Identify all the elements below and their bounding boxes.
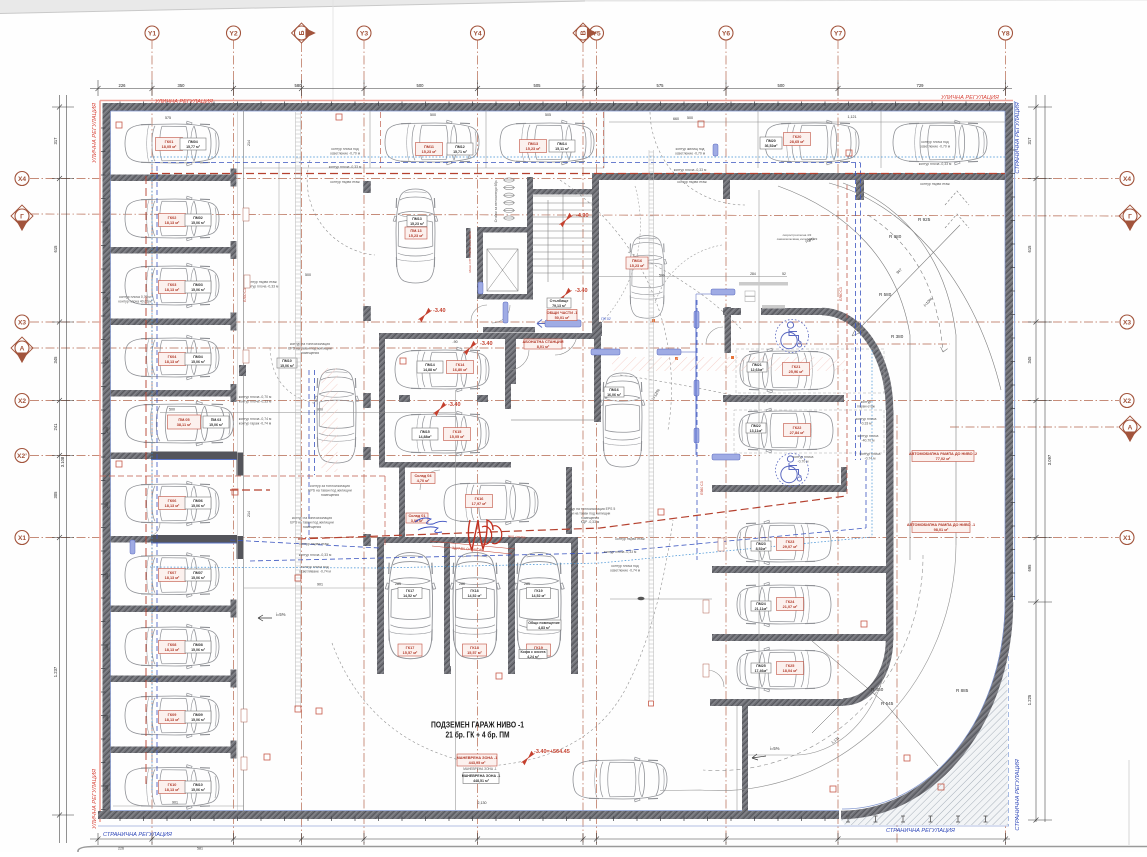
svg-text:контур първи етаж: контур първи етаж bbox=[615, 537, 645, 541]
svg-text:580: 580 bbox=[295, 83, 303, 88]
svg-text:Склад 01: Склад 01 bbox=[409, 514, 426, 518]
svg-text:615: 615 bbox=[1027, 245, 1032, 253]
svg-text:i=5%: i=5% bbox=[770, 746, 780, 751]
svg-text:15,06 м²: 15,06 м² bbox=[191, 288, 206, 292]
svg-text:МАНЕВРЕНА ЗОНА -1: МАНЕВРЕНА ЗОНА -1 bbox=[462, 774, 501, 778]
svg-text:СТРАНИЧНА РЕГУЛАЦИЯ: СТРАНИЧНА РЕГУЛАЦИЯ bbox=[886, 828, 955, 834]
svg-text:ПМ23: ПМ23 bbox=[756, 542, 766, 546]
svg-text:контур първи етаж: контур първи етаж bbox=[330, 180, 360, 184]
svg-text:-90: -90 bbox=[452, 340, 457, 344]
svg-text:18,04 м²: 18,04 м² bbox=[783, 669, 798, 673]
svg-text:345: 345 bbox=[1027, 356, 1032, 364]
svg-text:R 980: R 980 bbox=[889, 234, 902, 239]
svg-text:СТРАНИЧНА РЕГУЛАЦИЯ: СТРАНИЧНА РЕГУЛАЦИЯ bbox=[1015, 102, 1021, 173]
svg-text:15,05 м²: 15,05 м² bbox=[450, 435, 465, 439]
svg-text:3.097: 3.097 bbox=[1047, 454, 1052, 465]
svg-text:Y5: Y5 bbox=[592, 30, 601, 37]
svg-text:контур жилищ подосветление -0,: контур жилищ подосветление -0,70 м bbox=[675, 147, 706, 155]
svg-text:288: 288 bbox=[105, 502, 109, 508]
svg-text:контур първи етажконтур плоча: контур първи етажконтур плоча -0,33 м bbox=[246, 280, 279, 288]
svg-text:ГК17: ГК17 bbox=[406, 589, 414, 593]
svg-text:18,13 м²: 18,13 м² bbox=[165, 504, 180, 508]
svg-text:X1: X1 bbox=[18, 535, 26, 542]
svg-text:ГК16: ГК16 bbox=[475, 497, 484, 501]
svg-text:573: 573 bbox=[105, 357, 109, 363]
svg-text:ГК17: ГК17 bbox=[406, 646, 415, 650]
svg-text:ПМ22: ПМ22 bbox=[751, 424, 761, 428]
svg-text:ПМ03: ПМ03 bbox=[193, 283, 203, 287]
svg-text:ПМ16: ПМ16 bbox=[632, 259, 642, 263]
svg-text:18,05 м²: 18,05 м² bbox=[162, 145, 177, 149]
svg-text:X4: X4 bbox=[1123, 176, 1131, 183]
svg-text:8,52м²: 8,52м² bbox=[756, 547, 768, 551]
svg-text:ЕЛ60 С3: ЕЛ60 С3 bbox=[839, 287, 843, 301]
svg-text:500: 500 bbox=[778, 83, 786, 88]
svg-text:ПОДЗЕМЕН ГАРАЖ НИВО -1: ПОДЗЕМЕН ГАРАЖ НИВО -1 bbox=[431, 721, 524, 730]
svg-text:15,06 м²: 15,06 м² bbox=[280, 364, 295, 368]
svg-text:контур плоча -0,33 м: контур плоча -0,33 м bbox=[604, 550, 637, 554]
svg-text:ПМ10: ПМ10 bbox=[193, 783, 203, 787]
svg-text:ПМ06: ПМ06 bbox=[193, 499, 203, 503]
svg-text:ОБЩИ ЧАСТИ -1: ОБЩИ ЧАСТИ -1 bbox=[547, 311, 578, 315]
svg-text:ПМ04: ПМ04 bbox=[193, 355, 203, 359]
svg-text:285: 285 bbox=[395, 582, 401, 586]
svg-text:500: 500 bbox=[430, 113, 436, 117]
svg-text:4,70 м²: 4,70 м² bbox=[417, 479, 430, 483]
svg-text:ГК01: ГК01 bbox=[165, 140, 174, 144]
svg-text:Кофа с охсега: Кофа с охсега bbox=[520, 650, 546, 654]
svg-text:15,06 м²: 15,06 м² bbox=[191, 788, 206, 792]
svg-text:8,01 м²: 8,01 м² bbox=[537, 345, 550, 349]
svg-text:ПМ02: ПМ02 bbox=[193, 216, 203, 220]
svg-text:15,06 м²: 15,06 м² bbox=[191, 360, 206, 364]
svg-text:15,77 м²: 15,77 м² bbox=[186, 145, 201, 149]
svg-text:Y2: Y2 bbox=[229, 30, 238, 37]
svg-text:25,96 м²: 25,96 м² bbox=[789, 370, 804, 374]
svg-text:575: 575 bbox=[657, 83, 665, 88]
svg-text:15,23 м²: 15,23 м² bbox=[422, 150, 437, 154]
svg-text:УЛИЧНА РЕГУЛАЦИЯ: УЛИЧНА РЕГУЛАЦИЯ bbox=[940, 95, 999, 101]
svg-text:контур плоча подосветление -0,: контур плоча подосветление -0,70 м bbox=[920, 140, 951, 148]
svg-text:X3: X3 bbox=[18, 320, 26, 327]
svg-text:i=5%: i=5% bbox=[276, 612, 286, 617]
svg-text:-3.40: -3.40 bbox=[575, 288, 588, 294]
svg-text:R 885: R 885 bbox=[956, 688, 969, 693]
svg-text:X4: X4 bbox=[18, 176, 26, 183]
svg-text:1,121: 1,121 bbox=[848, 115, 857, 119]
svg-text:36,52м²: 36,52м² bbox=[765, 144, 779, 148]
svg-text:1.237: 1.237 bbox=[53, 666, 58, 677]
svg-text:УЛИЧНА РЕГУЛАЦИЯ: УЛИЧНА РЕГУЛАЦИЯ bbox=[92, 103, 98, 164]
svg-text:15,06 м²: 15,06 м² bbox=[191, 221, 206, 225]
svg-text:214: 214 bbox=[247, 140, 251, 146]
svg-text:ПМ04: ПМ04 bbox=[188, 140, 198, 144]
svg-text:ПМ25: ПМ25 bbox=[756, 664, 766, 668]
svg-text:15,57 м²: 15,57 м² bbox=[467, 651, 482, 655]
svg-text:350: 350 bbox=[178, 83, 186, 88]
svg-text:15,06 м²: 15,06 м² bbox=[191, 718, 206, 722]
svg-text:500: 500 bbox=[169, 408, 175, 412]
svg-text:15,23 м²: 15,23 м² bbox=[526, 147, 541, 151]
svg-text:Г: Г bbox=[1128, 214, 1132, 221]
svg-text:15,23 м²: 15,23 м² bbox=[410, 222, 425, 226]
svg-text:15,23 м²: 15,23 м² bbox=[630, 264, 645, 268]
svg-text:38,11 м²: 38,11 м² bbox=[177, 423, 192, 427]
svg-text:15,06 м²: 15,06 м² bbox=[191, 648, 206, 652]
svg-text:ПМ11: ПМ11 bbox=[424, 145, 434, 149]
svg-text:575: 575 bbox=[165, 116, 171, 120]
svg-text:28,65 м²: 28,65 м² bbox=[790, 140, 805, 144]
svg-text:12,63м²: 12,63м² bbox=[751, 368, 765, 372]
svg-text:288: 288 bbox=[105, 573, 109, 579]
svg-text:Е980 С3: Е980 С3 bbox=[700, 481, 704, 494]
svg-text:317: 317 bbox=[53, 137, 58, 145]
svg-text:X2’: X2’ bbox=[17, 453, 27, 460]
svg-text:Стълбище: Стълбище bbox=[550, 299, 569, 303]
svg-text:500: 500 bbox=[305, 273, 311, 277]
svg-text:R 925: R 925 bbox=[918, 217, 931, 222]
svg-text:13,11м²: 13,11м² bbox=[750, 429, 763, 433]
svg-text:288: 288 bbox=[105, 715, 109, 721]
svg-text:контур плоча 0,70 мконтур плоч: контур плоча 0,70 мконтур плоча 40,03 м bbox=[118, 295, 152, 303]
svg-text:X2: X2 bbox=[1123, 398, 1131, 405]
svg-text:15,23 м²: 15,23 м² bbox=[409, 234, 424, 238]
svg-text:Y8: Y8 bbox=[1001, 30, 1010, 37]
svg-text:443,95 м²: 443,95 м² bbox=[469, 761, 486, 765]
svg-text:ЕЛ30 С3: ЕЛ30 С3 bbox=[243, 288, 247, 302]
svg-text:УЛИЧНА РЕГУЛАЦИЯ: УЛИЧНА РЕГУЛАЦИЯ bbox=[154, 99, 213, 105]
svg-text:ГК14: ГК14 bbox=[456, 363, 466, 367]
svg-text:ГК04: ГК04 bbox=[168, 355, 178, 359]
svg-text:контур плоча подосветление -0,: контур плоча подосветление -0,74 м bbox=[610, 564, 641, 572]
svg-text:ГК15: ГК15 bbox=[453, 430, 462, 434]
svg-text:52: 52 bbox=[782, 272, 786, 276]
svg-text:50,01 м²: 50,01 м² bbox=[555, 316, 570, 320]
svg-text:79,13 м²: 79,13 м² bbox=[552, 304, 567, 308]
svg-text:14,52 м²: 14,52 м² bbox=[403, 594, 418, 598]
svg-text:контур първи етаж: контур първи етаж bbox=[299, 542, 329, 546]
svg-text:288: 288 bbox=[105, 297, 109, 303]
svg-text:ГК24: ГК24 bbox=[786, 600, 796, 604]
svg-text:286: 286 bbox=[459, 582, 465, 586]
svg-text:226: 226 bbox=[118, 847, 124, 851]
svg-text:17,97 м²: 17,97 м² bbox=[472, 502, 487, 506]
svg-text:615: 615 bbox=[53, 245, 58, 253]
svg-text:ПМ10: ПМ10 bbox=[282, 359, 292, 363]
svg-text:695: 695 bbox=[1027, 564, 1032, 572]
svg-text:21 бр. ГК + 4 бр. ПМ: 21 бр. ГК + 4 бр. ПМ bbox=[446, 731, 510, 740]
svg-text:77,02 м²: 77,02 м² bbox=[936, 457, 951, 461]
svg-text:14,88м²: 14,88м² bbox=[419, 435, 433, 439]
svg-text:241: 241 bbox=[53, 423, 58, 431]
svg-text:МАНЕВРЕНА ЗОНА -1: МАНЕВРЕНА ЗОНА -1 bbox=[457, 756, 498, 760]
svg-text:-4.90: -4.90 bbox=[576, 213, 589, 219]
svg-text:ПМ.05: ПМ.05 bbox=[178, 418, 189, 422]
svg-text:ПМ14: ПМ14 bbox=[557, 142, 567, 146]
svg-text:-3.40: -3.40 bbox=[448, 402, 461, 408]
svg-text:контур плоча -0,33 м: контур плоча -0,33 м bbox=[299, 553, 332, 557]
svg-text:581: 581 bbox=[197, 847, 203, 851]
svg-text:X2: X2 bbox=[18, 398, 26, 405]
svg-text:В: В bbox=[581, 30, 588, 35]
svg-text:14,52 м²: 14,52 м² bbox=[532, 594, 547, 598]
svg-text:345: 345 bbox=[53, 356, 58, 364]
svg-text:СТРАНИЧНА РЕГУЛАЦИЯ: СТРАНИЧНА РЕГУЛАЦИЯ bbox=[1015, 759, 1021, 830]
svg-text:ГК09: ГК09 bbox=[168, 713, 177, 717]
svg-text:286: 286 bbox=[105, 227, 109, 233]
svg-text:Y3: Y3 bbox=[360, 30, 369, 37]
svg-text:ПМ14: ПМ14 bbox=[425, 363, 435, 367]
svg-text:Стойки за велосипеди 6бр.: Стойки за велосипеди 6бр. bbox=[494, 180, 498, 223]
svg-text:ПМ15: ПМ15 bbox=[420, 430, 430, 434]
svg-text:18,13 м²: 18,13 м² bbox=[165, 360, 180, 364]
svg-text:ПМ.13: ПМ.13 bbox=[410, 229, 421, 233]
svg-text:18,13 м²: 18,13 м² bbox=[165, 576, 180, 580]
svg-text:286: 286 bbox=[105, 644, 109, 650]
svg-text:контур плоча -0,74 мконтур гар: контур плоча -0,74 мконтур гараж -0,74 м bbox=[239, 417, 272, 425]
svg-text:3.108: 3.108 bbox=[60, 456, 65, 467]
svg-text:А: А bbox=[1128, 425, 1133, 432]
svg-text:4,83 м²: 4,83 м² bbox=[538, 626, 551, 630]
svg-text:Y4: Y4 bbox=[473, 30, 482, 37]
svg-text:контур плоча -0,33 м: контур плоча -0,33 м bbox=[919, 162, 952, 166]
svg-text:ГК03: ГК03 bbox=[168, 283, 177, 287]
svg-text:ПМ09: ПМ09 bbox=[193, 713, 203, 717]
svg-text:ПМ24: ПМ24 bbox=[756, 602, 766, 606]
svg-text:17,46м²: 17,46м² bbox=[755, 669, 769, 673]
svg-text:СТРАНИЧНА РЕГУЛАЦИЯ: СТРАНИЧНА РЕГУЛАЦИЯ bbox=[103, 832, 172, 838]
svg-text:14,88 м²: 14,88 м² bbox=[423, 368, 438, 372]
svg-text:А: А bbox=[20, 346, 25, 353]
svg-text:ГК18: ГК18 bbox=[470, 589, 478, 593]
svg-text:18,13 м²: 18,13 м² bbox=[165, 288, 180, 292]
svg-text:контур плоча подосветляване -0: контур плоча подосветляване -0,74 м bbox=[299, 565, 331, 573]
svg-text:X1: X1 bbox=[1123, 535, 1131, 542]
svg-text:901: 901 bbox=[317, 583, 323, 587]
svg-text:ГК02: ГК02 bbox=[168, 216, 177, 220]
svg-text:15,11 м²: 15,11 м² bbox=[555, 147, 569, 151]
svg-text:контур плоча -0,33 м: контур плоча -0,33 м bbox=[329, 165, 362, 169]
svg-text:ГК06: ГК06 bbox=[168, 499, 177, 503]
svg-text:ПМ13: ПМ13 bbox=[412, 217, 422, 221]
svg-text:ГК18: ГК18 bbox=[470, 646, 479, 650]
svg-text:901: 901 bbox=[172, 801, 178, 805]
svg-text:контур плоча -0,33 м: контур плоча -0,33 м bbox=[674, 168, 707, 172]
svg-text:-3.40: -3.40 bbox=[480, 341, 493, 347]
svg-text:Г: Г bbox=[20, 214, 24, 221]
svg-text:29,07 м²: 29,07 м² bbox=[783, 545, 798, 549]
svg-text:16,06 м²: 16,06 м² bbox=[607, 393, 622, 397]
svg-text:500: 500 bbox=[687, 116, 693, 120]
svg-text:АВТОМОБИЛНА РАМПА ДО НИВО -1: АВТОМОБИЛНА РАМПА ДО НИВО -1 bbox=[907, 523, 975, 527]
svg-text:15,57 м²: 15,57 м² bbox=[403, 651, 418, 655]
svg-text:ГК25: ГК25 bbox=[786, 664, 795, 668]
svg-text:15,06 м²: 15,06 м² bbox=[191, 504, 206, 508]
svg-text:505: 505 bbox=[534, 83, 542, 88]
svg-text:АБОНАТНА СТАНЦИЯ: АБОНАТНА СТАНЦИЯ bbox=[522, 340, 563, 344]
svg-text:18,13 м²: 18,13 м² bbox=[165, 788, 180, 792]
svg-text:контур плоча подосветление -0,: контур плоча подосветление -0,70 м bbox=[330, 147, 361, 155]
svg-text:ГК21: ГК21 bbox=[792, 365, 801, 369]
svg-text:660: 660 bbox=[673, 117, 679, 121]
svg-text:ПМ20: ПМ20 bbox=[766, 139, 776, 143]
svg-text:Склад 04: Склад 04 bbox=[415, 474, 433, 478]
svg-text:14,52 м²: 14,52 м² bbox=[468, 594, 483, 598]
svg-text:15,06 м²: 15,06 м² bbox=[191, 576, 206, 580]
svg-text:ГК07: ГК07 bbox=[168, 571, 177, 575]
svg-text:ПМ21: ПМ21 bbox=[752, 363, 762, 367]
svg-text:729: 729 bbox=[917, 83, 925, 88]
svg-text:контур плоча -0,70 мконтур пло: контур плоча -0,70 мконтур плоча -0,33 м bbox=[239, 395, 272, 403]
svg-text:284: 284 bbox=[750, 272, 756, 276]
svg-text:317: 317 bbox=[1027, 137, 1032, 145]
svg-text:505: 505 bbox=[545, 113, 551, 117]
svg-text:285: 285 bbox=[524, 582, 530, 586]
svg-text:18,13 м²: 18,13 м² bbox=[165, 221, 180, 225]
svg-text:288: 288 bbox=[105, 785, 109, 791]
svg-text:ГК19: ГК19 bbox=[534, 589, 542, 593]
svg-text:ПК 02: ПК 02 bbox=[601, 317, 611, 321]
svg-text:Y1: Y1 bbox=[148, 30, 157, 37]
svg-text:МАНЕВРЕНА ЗОНА -1: МАНЕВРЕНА ЗОНА -1 bbox=[463, 767, 497, 771]
svg-text:226: 226 bbox=[119, 83, 127, 88]
svg-text:15,71 м²: 15,71 м² bbox=[453, 150, 468, 154]
svg-text:2,130: 2,130 bbox=[478, 801, 487, 805]
svg-text:R 450: R 450 bbox=[871, 687, 884, 692]
svg-text:ГК22: ГК22 bbox=[793, 426, 802, 430]
svg-text:Общо помещение: Общо помещение bbox=[528, 621, 560, 625]
svg-text:214: 214 bbox=[247, 511, 251, 517]
svg-text:500: 500 bbox=[417, 83, 425, 88]
svg-text:R 580: R 580 bbox=[879, 292, 892, 297]
svg-text:УЛИЧНА РЕГУЛАЦИЯ: УЛИЧНА РЕГУЛАЦИЯ bbox=[92, 769, 98, 830]
svg-text:ПМ.03: ПМ.03 bbox=[211, 418, 222, 422]
svg-text:ПМ08: ПМ08 bbox=[193, 643, 203, 647]
svg-text:16,80 м²: 16,80 м² bbox=[453, 368, 468, 372]
svg-text:18,13 м²: 18,13 м² bbox=[165, 648, 180, 652]
svg-text:контур първи етаж: контур първи етаж bbox=[677, 180, 707, 184]
svg-text:ПМ16: ПМ16 bbox=[609, 388, 619, 392]
svg-text:ГК20: ГК20 bbox=[793, 135, 802, 139]
svg-text:1.225: 1.225 bbox=[1027, 694, 1032, 705]
svg-text:Y6: Y6 bbox=[722, 30, 731, 37]
svg-text:21,07 м²: 21,07 м² bbox=[783, 605, 798, 609]
svg-text:286: 286 bbox=[105, 427, 109, 433]
svg-text:Б: Б bbox=[299, 30, 306, 35]
svg-text:контур първи етаж: контур първи етаж bbox=[920, 182, 950, 186]
svg-text:3,08 м²: 3,08 м² bbox=[411, 519, 424, 523]
svg-text:ПМ13: ПМ13 bbox=[528, 142, 538, 146]
svg-text:МАШ. ОТГ ТАБЛО и ел.табло: МАШ. ОТГ ТАБЛО и ел.табло bbox=[468, 231, 472, 272]
svg-text:АВТОМОБИЛНА РАМПА ДО НИВО -2: АВТОМОБИЛНА РАМПА ДО НИВО -2 bbox=[909, 452, 977, 456]
svg-text:21,11м²: 21,11м² bbox=[755, 607, 768, 611]
svg-text:305: 305 bbox=[53, 491, 58, 499]
svg-text:ПМ07: ПМ07 bbox=[193, 571, 203, 575]
svg-text:-3.40=+564.45: -3.40=+564.45 bbox=[534, 749, 570, 755]
svg-text:15,06 м²: 15,06 м² bbox=[209, 423, 224, 427]
svg-text:ПМ12: ПМ12 bbox=[455, 145, 465, 149]
svg-text:ГК10: ГК10 bbox=[168, 783, 177, 787]
svg-text:18,13 м²: 18,13 м² bbox=[165, 718, 180, 722]
svg-text:Y7: Y7 bbox=[834, 30, 843, 37]
svg-text:4,24 м²: 4,24 м² bbox=[527, 655, 540, 659]
svg-text:X3: X3 bbox=[1123, 320, 1131, 327]
svg-text:448,51 м²: 448,51 м² bbox=[473, 779, 490, 783]
svg-text:ГК08: ГК08 bbox=[168, 643, 177, 647]
svg-text:R 380: R 380 bbox=[891, 334, 904, 339]
svg-text:-3.40: -3.40 bbox=[433, 308, 446, 314]
svg-text:ГК23: ГК23 bbox=[786, 540, 795, 544]
svg-text:98,01 м²: 98,01 м² bbox=[934, 528, 949, 532]
svg-text:27,84 м²: 27,84 м² bbox=[790, 431, 805, 435]
